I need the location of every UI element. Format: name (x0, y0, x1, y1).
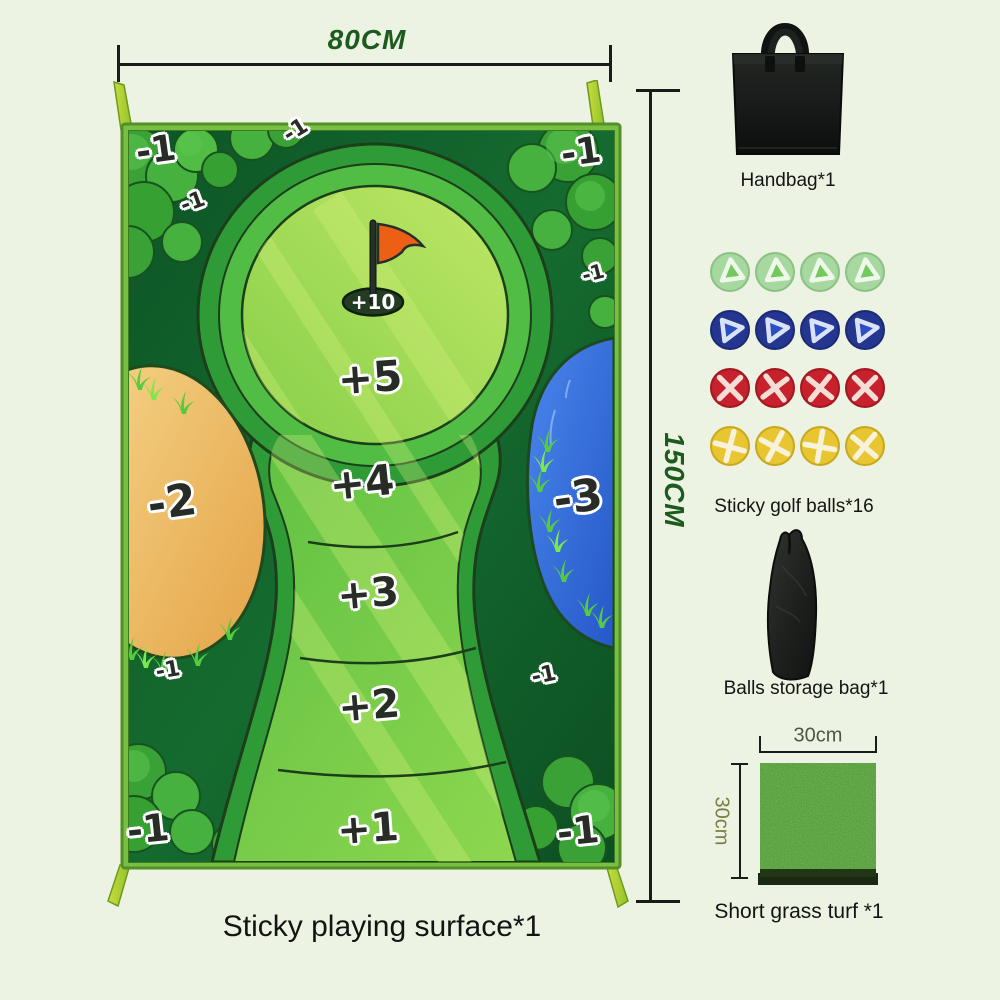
storage-bag-illustration (752, 526, 842, 684)
sticky-ball-yellow (755, 426, 795, 466)
penalty-label: -1 (555, 810, 601, 852)
sticky-ball-blue (710, 310, 750, 350)
zone-label-2: +2 (337, 683, 402, 728)
zone-label-1: +1 (336, 807, 400, 851)
zone-label-3: +3 (336, 571, 401, 616)
mat-height-label: 150CM (658, 432, 690, 527)
sticky-ball-red (710, 368, 750, 408)
bunker-label: -2 (145, 478, 200, 528)
sticky-ball-red (845, 368, 885, 408)
zone-label-4: +4 (328, 459, 396, 508)
sticky-ball-yellow (800, 426, 840, 466)
penalty-label: -1 (134, 130, 179, 171)
storage-bag-caption: Balls storage bag*1 (724, 678, 889, 700)
sticky-ball-red (755, 368, 795, 408)
sticky-ball-yellow (710, 426, 750, 466)
turf-caption: Short grass turf *1 (714, 900, 883, 924)
penalty-label: -1 (154, 658, 182, 684)
penalty-label: -1 (530, 663, 558, 690)
sticky-ball-green (845, 252, 885, 292)
handbag-body (733, 54, 843, 154)
dimension-line (649, 90, 652, 902)
penalty-label: -1 (559, 132, 604, 173)
mat-caption: Sticky playing surface*1 (223, 910, 542, 944)
sticky-ball-red (800, 368, 840, 408)
turf-illustration (758, 761, 878, 887)
penalty-label: -1 (580, 260, 607, 285)
handbag-caption: Handbag*1 (740, 170, 835, 192)
turf-width-label: 30cm (794, 725, 843, 748)
product-sheet: 80CM 150CM (0, 0, 1000, 1000)
hole-label: +10 (351, 292, 396, 312)
dimension-tick (609, 45, 612, 82)
sticky-ball-blue (755, 310, 795, 350)
penalty-label: -1 (125, 808, 171, 850)
water-label: -3 (551, 473, 606, 523)
zone-label-5: +5 (336, 355, 403, 401)
balls-grid (710, 252, 885, 466)
turf-height-label: 30cm (710, 797, 733, 846)
sticky-ball-blue (845, 310, 885, 350)
sticky-ball-blue (800, 310, 840, 350)
sticky-ball-yellow (845, 426, 885, 466)
handbag-illustration (715, 2, 855, 167)
balls-caption: Sticky golf balls*16 (714, 496, 873, 518)
sticky-ball-green (710, 252, 750, 292)
sticky-ball-green (755, 252, 795, 292)
sticky-ball-green (800, 252, 840, 292)
dimension-line (118, 63, 612, 66)
storage-bag-body (768, 530, 816, 679)
mat-width-label: 80CM (328, 24, 407, 56)
dimension-tick (117, 45, 120, 82)
